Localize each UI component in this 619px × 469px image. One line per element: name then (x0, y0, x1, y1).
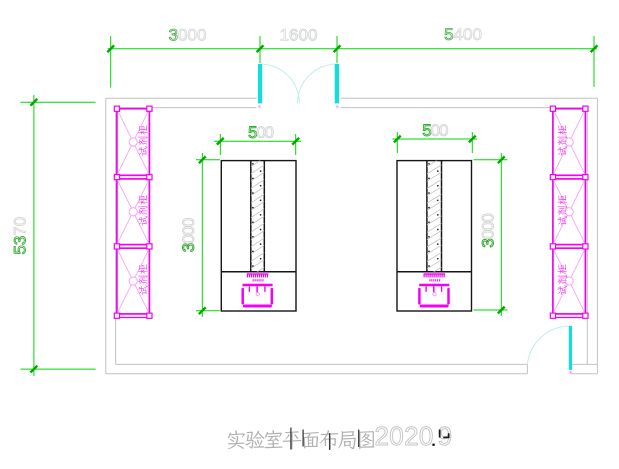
svg-text:5400: 5400 (444, 25, 482, 44)
svg-text:3000: 3000 (169, 26, 207, 45)
svg-text:3000: 3000 (479, 214, 498, 248)
svg-text:1600: 1600 (280, 26, 318, 45)
svg-text:3000: 3000 (179, 218, 198, 252)
svg-text:500: 500 (248, 123, 274, 142)
svg-text:5370: 5370 (11, 217, 30, 255)
svg-text:2020: 2020 (375, 421, 434, 451)
svg-text:500: 500 (422, 121, 448, 140)
